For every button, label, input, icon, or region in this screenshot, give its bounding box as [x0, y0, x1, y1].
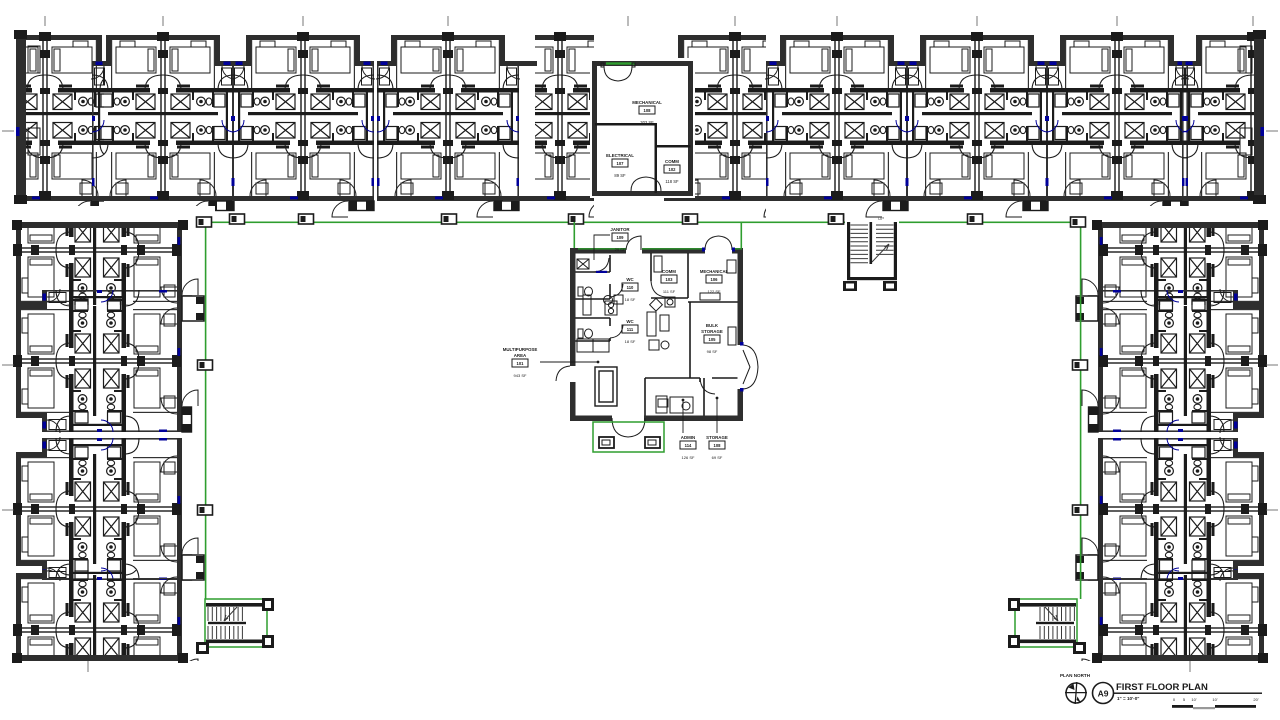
svg-text:ADMIN: ADMIN: [681, 435, 695, 440]
svg-text:STORAGE: STORAGE: [706, 435, 728, 440]
svg-text:18 SF: 18 SF: [625, 339, 636, 344]
svg-text:105: 105: [709, 337, 717, 342]
svg-text:108: 108: [644, 108, 652, 113]
svg-text:10': 10': [1212, 697, 1217, 702]
svg-text:WC: WC: [626, 319, 634, 324]
svg-text:AREA: AREA: [514, 353, 527, 358]
svg-text:MECHANICAL: MECHANICAL: [700, 269, 729, 274]
svg-text:29 SF: 29 SF: [615, 247, 626, 252]
svg-text:109: 109: [617, 235, 625, 240]
svg-text:102: 102: [669, 167, 677, 172]
svg-text:UP: UP: [878, 216, 884, 221]
svg-text:COMM: COMM: [662, 269, 676, 274]
svg-text:303 SF: 303 SF: [640, 120, 654, 125]
svg-text:A9: A9: [1098, 689, 1109, 699]
svg-text:ELECTRICAL: ELECTRICAL: [606, 153, 634, 158]
svg-text:MULTIPURPOSE: MULTIPURPOSE: [503, 347, 538, 352]
svg-text:WC: WC: [626, 277, 634, 282]
svg-text:1" = 10'-0": 1" = 10'-0": [1117, 696, 1139, 701]
svg-text:PLAN NORTH: PLAN NORTH: [1060, 673, 1091, 678]
svg-text:107: 107: [617, 161, 625, 166]
svg-text:943 SF: 943 SF: [514, 373, 527, 378]
svg-text:10': 10': [1191, 697, 1196, 702]
svg-text:89 SF: 89 SF: [614, 173, 626, 178]
svg-text:111 SF: 111 SF: [663, 289, 676, 294]
svg-text:69 SF: 69 SF: [712, 455, 723, 460]
svg-text:18 SF: 18 SF: [625, 297, 636, 302]
svg-text:STORAGE: STORAGE: [701, 329, 723, 334]
svg-text:JANITOR: JANITOR: [610, 227, 630, 232]
svg-text:111: 111: [627, 327, 634, 332]
svg-text:118 SF: 118 SF: [665, 179, 679, 184]
svg-text:103: 103: [666, 277, 674, 282]
svg-text:108: 108: [714, 443, 722, 448]
svg-text:20': 20': [1253, 697, 1258, 702]
svg-text:MECHANICAL: MECHANICAL: [632, 100, 662, 105]
svg-text:101: 101: [517, 361, 525, 366]
svg-text:126 SF: 126 SF: [682, 455, 695, 460]
svg-text:114: 114: [685, 443, 692, 448]
svg-text:110: 110: [627, 285, 634, 290]
svg-text:FIRST FLOOR PLAN: FIRST FLOOR PLAN: [1116, 682, 1208, 693]
svg-text:106: 106: [711, 277, 719, 282]
svg-text:122 SF: 122 SF: [708, 289, 721, 294]
svg-text:98 SF: 98 SF: [707, 349, 718, 354]
svg-text:BULK: BULK: [706, 323, 719, 328]
svg-text:COMM: COMM: [665, 159, 679, 164]
